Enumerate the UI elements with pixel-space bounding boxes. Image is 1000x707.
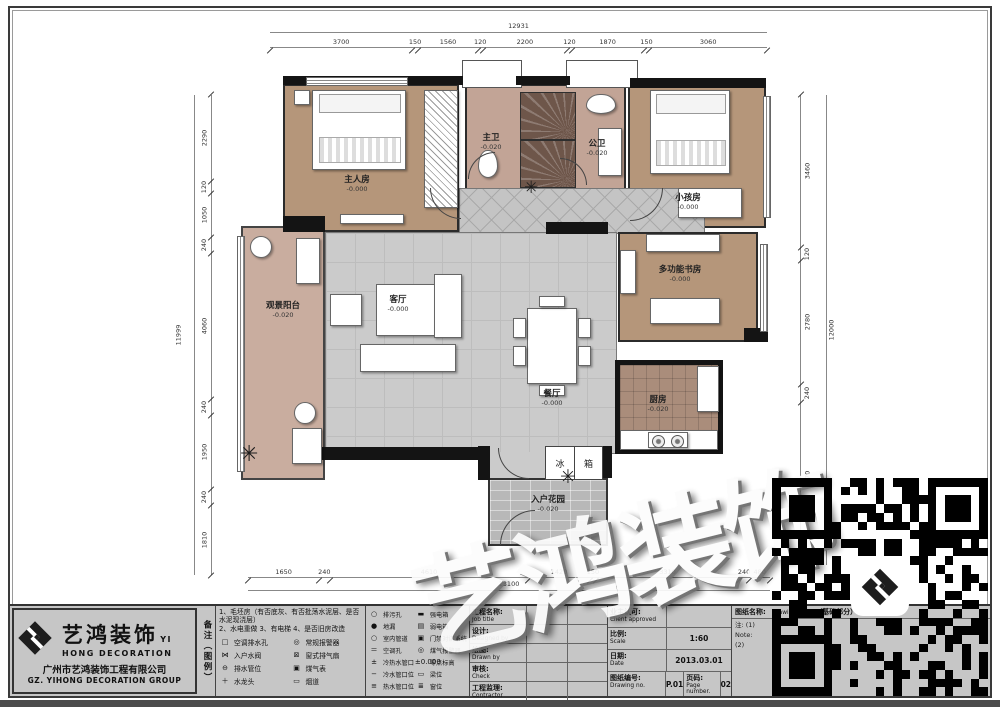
- qr-module: [841, 539, 850, 548]
- qr-module: [772, 539, 781, 548]
- qr-module: [867, 661, 876, 670]
- qr-module: [798, 600, 807, 609]
- qr-module: [902, 679, 911, 688]
- qr-module: [928, 652, 937, 661]
- qr-module: [807, 539, 816, 548]
- qr-module: [919, 487, 928, 496]
- qr-module: [902, 495, 911, 504]
- window: [760, 244, 768, 332]
- qr-module: [876, 679, 885, 688]
- dining-chair: [513, 346, 526, 366]
- qr-module: [798, 548, 807, 557]
- legend-item: ▭梁位: [415, 668, 467, 680]
- dim-total-top: 12931: [270, 22, 767, 33]
- qr-module: [971, 522, 980, 531]
- qr-module: [858, 530, 867, 539]
- qr-module: [919, 687, 928, 696]
- qr-module: [945, 504, 954, 513]
- legend-label: 烟道: [306, 676, 320, 686]
- qr-module: [815, 574, 824, 583]
- qr-module: [815, 583, 824, 592]
- qr-module: [928, 548, 937, 557]
- qr-module: [850, 679, 859, 688]
- qr-module: [919, 670, 928, 679]
- qr-module: [884, 687, 893, 696]
- qr-module: [841, 513, 850, 522]
- qr-module: [867, 670, 876, 679]
- qr-module: [962, 495, 971, 504]
- qr-module: [798, 679, 807, 688]
- qr-module: [824, 609, 833, 618]
- qr-module: [832, 635, 841, 644]
- qr-module: [807, 600, 816, 609]
- qr-module: [919, 661, 928, 670]
- qr-module: [772, 495, 781, 504]
- legend-item: □空调排水孔: [219, 635, 291, 648]
- legend-label: 窗式排气扇: [306, 650, 340, 660]
- bed-master: [312, 90, 406, 170]
- qr-module: [841, 556, 850, 565]
- qr-module: [910, 626, 919, 635]
- qr-module: [789, 565, 798, 574]
- qr-module: [832, 487, 841, 496]
- legend-item: ▭烟道: [291, 674, 363, 687]
- qr-module: [858, 504, 867, 513]
- qr-module: [962, 600, 971, 609]
- window: [237, 236, 245, 472]
- qr-module: [824, 530, 833, 539]
- dim-segment: 3460: [801, 95, 814, 247]
- qr-module: [772, 609, 781, 618]
- qr-module: [832, 530, 841, 539]
- qr-module: [867, 626, 876, 635]
- date-label: 日期:Date: [608, 650, 667, 671]
- legend-label: 地漏: [383, 622, 395, 631]
- qr-module: [807, 478, 816, 487]
- qr-module: [962, 618, 971, 627]
- qr-module: [919, 495, 928, 504]
- legend-symbol-icon: ●: [368, 622, 380, 630]
- legend-symbol-icon: ±: [368, 658, 380, 666]
- qr-module: [867, 618, 876, 627]
- qr-module: [971, 487, 980, 496]
- qr-module: [850, 522, 859, 531]
- qr-module: [876, 530, 885, 539]
- qr-module: [807, 522, 816, 531]
- project-row-label: 工程监理:Contractor: [470, 682, 527, 700]
- dim-row-top: 37001501560120220012018701503060: [270, 34, 767, 48]
- qr-module: [772, 687, 781, 696]
- qr-module: [902, 530, 911, 539]
- qr-module: [772, 513, 781, 522]
- qr-module: [910, 548, 919, 557]
- legend-label: 冷热水管口: [383, 658, 414, 667]
- qr-module: [867, 539, 876, 548]
- dim-segment: 240: [801, 384, 814, 402]
- qr-module: [936, 670, 945, 679]
- qr-module: [928, 618, 937, 627]
- legend-label: 门禁对讲系统: [430, 634, 467, 643]
- qr-module: [928, 487, 937, 496]
- qr-module: [979, 478, 988, 487]
- qr-module: [979, 626, 988, 635]
- qr-module: [781, 652, 790, 661]
- qr-module: [936, 530, 945, 539]
- qr-module: [832, 495, 841, 504]
- qr-module: [902, 670, 911, 679]
- qr-module: [876, 522, 885, 531]
- project-row-empty-cell: [568, 682, 608, 700]
- qr-module: [979, 530, 988, 539]
- qr-module: [781, 635, 790, 644]
- qr-module: [884, 635, 893, 644]
- dim-segment: 120: [198, 181, 211, 193]
- qr-module: [858, 522, 867, 531]
- qr-module: [858, 687, 867, 696]
- dim-segment: 1560: [418, 34, 478, 47]
- qr-module: [919, 618, 928, 627]
- qr-module: [893, 661, 902, 670]
- qr-module: [841, 652, 850, 661]
- legend-item: ≡热水管口位: [368, 680, 415, 692]
- company-fullname-en: GZ. YIHONG DECORATION GROUP: [28, 676, 182, 685]
- legend-item: ＋水龙头: [219, 674, 291, 687]
- dining-chair: [578, 318, 591, 338]
- qr-module: [815, 644, 824, 653]
- qr-module: [979, 583, 988, 592]
- room-label-master: 主人房-0.000: [322, 176, 392, 193]
- legend-symbol-icon: ▣: [415, 634, 427, 642]
- qr-module: [815, 513, 824, 522]
- dim-segment: 1870: [572, 34, 644, 47]
- qr-module: [789, 574, 798, 583]
- legend-label: 冷水管口位: [383, 670, 414, 679]
- qr-module: [815, 539, 824, 548]
- legend-symbol-icon: ≣: [415, 682, 427, 690]
- legend-label: 入户水阀: [234, 650, 261, 660]
- qr-module: [807, 565, 816, 574]
- legend-symbol-icon: ≡: [368, 682, 380, 690]
- qr-module: [824, 652, 833, 661]
- qr-module: [953, 530, 962, 539]
- qr-module: [858, 670, 867, 679]
- qr-module: [953, 478, 962, 487]
- dim-segment: 3310: [596, 564, 739, 577]
- qr-module: [789, 495, 798, 504]
- qr-module: [953, 487, 962, 496]
- qr-module: [772, 626, 781, 635]
- qr-module: [798, 635, 807, 644]
- plant-icon: ✳: [560, 468, 576, 487]
- qr-module: [936, 539, 945, 548]
- qr-module: [893, 504, 902, 513]
- qr-module: [807, 626, 816, 635]
- qr-module: [979, 609, 988, 618]
- qr-module: [850, 495, 859, 504]
- qr-module: [876, 513, 885, 522]
- qr-module: [824, 504, 833, 513]
- legend-symbol-icon: ▤: [415, 622, 427, 630]
- dining-chair: [578, 346, 591, 366]
- qr-module: [807, 661, 816, 670]
- qr-module: [858, 679, 867, 688]
- qr-module: [789, 661, 798, 670]
- balcony-table: [294, 402, 316, 424]
- dining-chair: [513, 318, 526, 338]
- qr-module: [936, 635, 945, 644]
- wall: [602, 446, 612, 478]
- qr-module: [824, 635, 833, 644]
- qr-module: [850, 478, 859, 487]
- qr-module: [945, 513, 954, 522]
- qr-module: [832, 548, 841, 557]
- qr-module: [936, 504, 945, 513]
- qr-module: [798, 539, 807, 548]
- qr-module: [884, 495, 893, 504]
- qr-module: [962, 565, 971, 574]
- qr-module: [902, 626, 911, 635]
- legend-column-c: ○排污孔●地漏○室内管道＝空调孔±冷热水管口−冷水管口位≡热水管口位: [368, 608, 415, 694]
- qr-module: [936, 548, 945, 557]
- qr-module: [850, 504, 859, 513]
- qr-module: [824, 574, 833, 583]
- qr-module: [832, 644, 841, 653]
- qr-module: [953, 574, 962, 583]
- qr-module: [832, 652, 841, 661]
- qr-module: [798, 522, 807, 531]
- room-label-kids: 小孩房-0.000: [658, 194, 718, 211]
- qr-module: [910, 687, 919, 696]
- legend-symbol-icon: ▭: [415, 670, 427, 678]
- qr-module: [772, 670, 781, 679]
- qr-module: [781, 487, 790, 496]
- dim-segment: 1650: [248, 564, 319, 577]
- qr-module: [781, 565, 790, 574]
- qr-module: [945, 495, 954, 504]
- qr-module: [832, 478, 841, 487]
- qr-module: [841, 618, 850, 627]
- qr-module: [979, 591, 988, 600]
- qr-module: [962, 583, 971, 592]
- qr-module: [928, 478, 937, 487]
- qr-module: [841, 495, 850, 504]
- legend-label: 水龙头: [234, 676, 254, 686]
- room-label-kitchen: 厨房-0.020: [628, 396, 688, 413]
- qr-module: [962, 609, 971, 618]
- qr-module: [832, 687, 841, 696]
- qr-module: [789, 478, 798, 487]
- legend-label: 室内管道: [383, 634, 408, 643]
- qr-module: [884, 661, 893, 670]
- qr-module: [919, 652, 928, 661]
- qr-module: [781, 661, 790, 670]
- qr-module: [945, 565, 954, 574]
- qr-module: [979, 652, 988, 661]
- qr-module: [781, 478, 790, 487]
- qr-module: [789, 539, 798, 548]
- qr-module: [910, 513, 919, 522]
- wall: [283, 216, 325, 232]
- wall: [310, 447, 484, 460]
- qr-module: [928, 565, 937, 574]
- qr-module: [919, 591, 928, 600]
- legend-item: ●地漏: [368, 620, 415, 632]
- qr-center-logo-icon: [851, 558, 909, 616]
- qr-module: [807, 556, 816, 565]
- qr-module: [928, 644, 937, 653]
- qr-module: [962, 644, 971, 653]
- qr-module: [841, 661, 850, 670]
- qr-module: [902, 661, 911, 670]
- qr-module: [936, 600, 945, 609]
- qr-module: [919, 556, 928, 565]
- qr-module: [858, 652, 867, 661]
- qr-module: [893, 652, 902, 661]
- client-approved-label: 业主认可:Client approved: [608, 606, 667, 627]
- qr-module: [832, 574, 841, 583]
- qr-module: [772, 591, 781, 600]
- qr-module: [919, 574, 928, 583]
- qr-module: [910, 556, 919, 565]
- qr-module: [928, 504, 937, 513]
- wall: [478, 446, 490, 480]
- qr-module: [772, 504, 781, 513]
- qr-module: [850, 618, 859, 627]
- qr-module: [962, 591, 971, 600]
- qr-module: [807, 618, 816, 627]
- qr-module: [832, 556, 841, 565]
- qr-module: [928, 600, 937, 609]
- qr-module: [936, 487, 945, 496]
- dim-segment: 3060: [649, 34, 767, 47]
- qr-module: [798, 574, 807, 583]
- qr-module: [824, 556, 833, 565]
- qr-module: [798, 478, 807, 487]
- qr-module: [858, 539, 867, 548]
- qr-module: [850, 530, 859, 539]
- legend-item: ⊠窗式排气扇: [291, 648, 363, 661]
- dim-row-bottom: 1650240461014201503310240480: [248, 564, 770, 578]
- qr-module: [953, 539, 962, 548]
- qr-module: [962, 626, 971, 635]
- qr-module: [850, 635, 859, 644]
- qr-module: [832, 513, 841, 522]
- qr-module: [945, 661, 954, 670]
- page-number-value: 02: [721, 672, 731, 696]
- legend-label: 窗位: [430, 682, 442, 691]
- qr-module: [824, 487, 833, 496]
- qr-module: [936, 661, 945, 670]
- legend-symbol-icon: ○: [368, 610, 380, 618]
- qr-module: [971, 478, 980, 487]
- qr-module: [919, 539, 928, 548]
- qr-module: [781, 556, 790, 565]
- qr-module: [867, 504, 876, 513]
- qr-module: [936, 626, 945, 635]
- legend-symbol-icon: ＝: [368, 645, 380, 655]
- project-row-label: 绘图:Drawn by: [470, 644, 527, 662]
- qr-module: [902, 478, 911, 487]
- qr-module: [824, 626, 833, 635]
- qr-module: [953, 504, 962, 513]
- qr-code: [772, 478, 988, 696]
- legend-item: ○室内管道: [368, 632, 415, 644]
- qr-module: [807, 687, 816, 696]
- qr-module: [928, 539, 937, 548]
- qr-module: [858, 635, 867, 644]
- qr-module: [858, 487, 867, 496]
- wall: [630, 78, 766, 88]
- qr-module: [971, 548, 980, 557]
- qr-module: [979, 487, 988, 496]
- qr-module: [858, 644, 867, 653]
- qr-module: [928, 687, 937, 696]
- qr-module: [772, 644, 781, 653]
- qr-module: [945, 574, 954, 583]
- legend-item: ▬强电箱: [415, 608, 467, 620]
- qr-module: [910, 600, 919, 609]
- legend-symbol-icon: ◎: [415, 646, 427, 654]
- legend-label: 排污孔: [383, 610, 402, 619]
- qr-module: [902, 522, 911, 531]
- qr-module: [893, 635, 902, 644]
- qr-module: [824, 591, 833, 600]
- qr-module: [910, 591, 919, 600]
- qr-module: [971, 670, 980, 679]
- dim-segment: 2200: [483, 34, 568, 47]
- qr-module: [798, 609, 807, 618]
- legend-label: 空调孔: [383, 646, 402, 655]
- qr-module: [893, 644, 902, 653]
- qr-module: [884, 548, 893, 557]
- shower-stall: [520, 92, 576, 140]
- qr-module: [815, 487, 824, 496]
- legend-label: 空调排水孔: [234, 637, 268, 647]
- qr-module: [936, 618, 945, 627]
- legend-symbol-icon: ＋: [219, 676, 231, 686]
- qr-module: [945, 687, 954, 696]
- qr-module: [858, 618, 867, 627]
- qr-module: [772, 548, 781, 557]
- qr-module: [928, 661, 937, 670]
- dim-segment: 480: [749, 564, 770, 577]
- qr-module: [876, 661, 885, 670]
- project-row-label: 设计:Designed by: [470, 625, 527, 643]
- qr-module: [824, 522, 833, 531]
- legend-symbol-icon: □: [219, 638, 231, 646]
- qr-module: [936, 591, 945, 600]
- qr-module: [919, 644, 928, 653]
- qr-module: [971, 530, 980, 539]
- qr-module: [876, 652, 885, 661]
- qr-module: [789, 513, 798, 522]
- qr-module: [841, 530, 850, 539]
- qr-module: [945, 609, 954, 618]
- toilet: [586, 94, 616, 114]
- dim-segment: 2780: [801, 260, 814, 384]
- qr-module: [841, 522, 850, 531]
- dim-segment: 1810: [198, 505, 211, 575]
- legend-label: 热水管口位: [383, 682, 414, 691]
- qr-module: [798, 687, 807, 696]
- page-number-label: 页码:Page number.: [684, 672, 720, 696]
- qr-module: [824, 670, 833, 679]
- qr-module: [945, 635, 954, 644]
- project-info-rows: 工程名称:Job title设计:Designed by绘图:Drawn by审…: [470, 606, 608, 696]
- qr-module: [884, 618, 893, 627]
- qr-module: [841, 687, 850, 696]
- dim-segment: 1420: [528, 564, 589, 577]
